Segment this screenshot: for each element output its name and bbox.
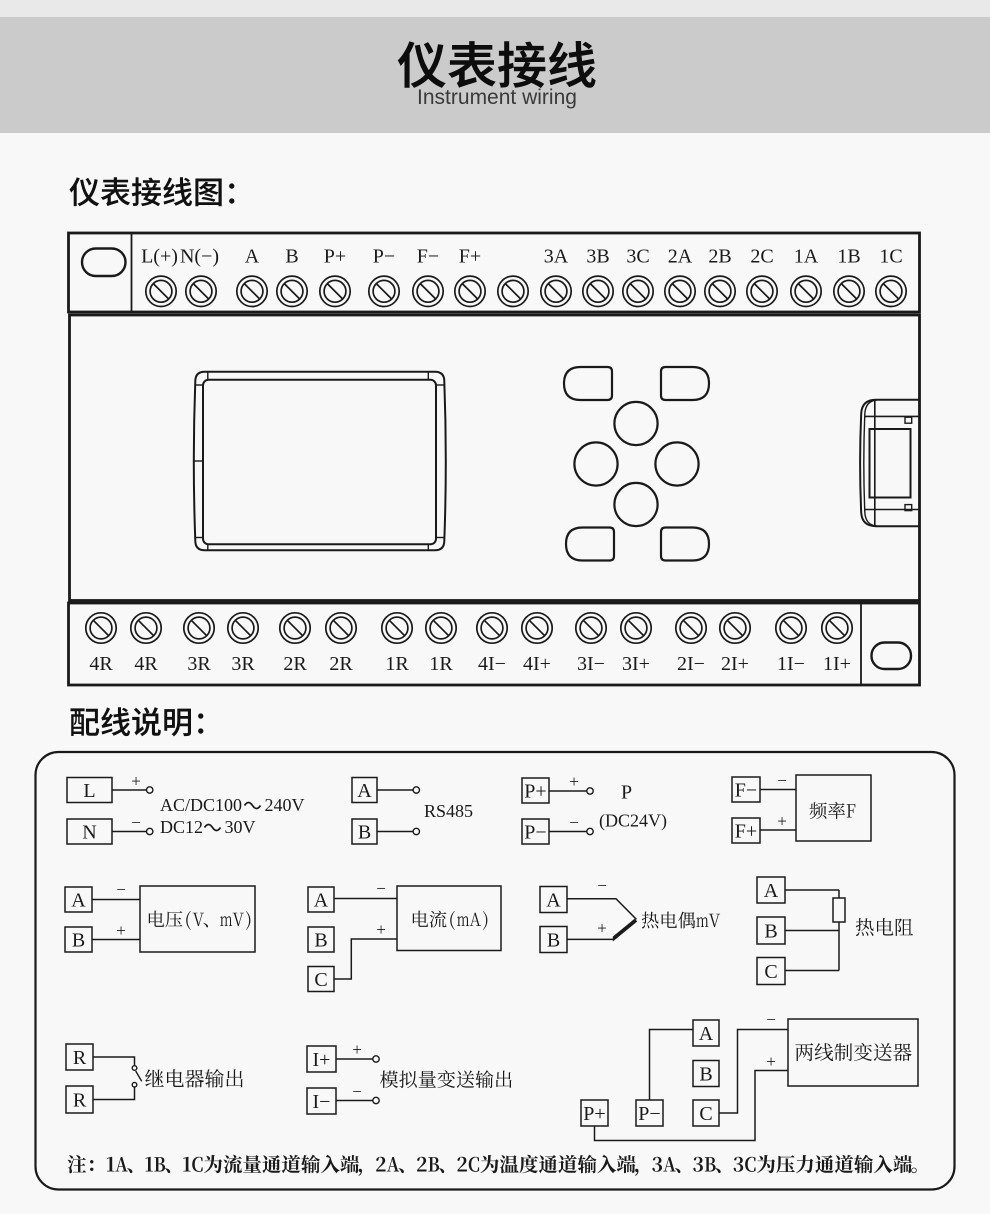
svg-text:R: R bbox=[73, 1089, 87, 1111]
svg-text:I+: I+ bbox=[313, 1049, 331, 1071]
svg-text:3I−: 3I− bbox=[577, 653, 605, 675]
svg-text:+: + bbox=[766, 1052, 776, 1071]
svg-text:3I+: 3I+ bbox=[622, 653, 650, 675]
svg-text:4R: 4R bbox=[89, 653, 113, 675]
svg-text:R: R bbox=[73, 1047, 87, 1069]
svg-text:B: B bbox=[547, 929, 560, 951]
svg-text:B: B bbox=[285, 246, 298, 268]
svg-text:P+: P+ bbox=[524, 780, 546, 802]
svg-text:−: − bbox=[766, 1010, 776, 1029]
svg-text:−: − bbox=[777, 771, 787, 790]
svg-text:A: A bbox=[546, 889, 561, 911]
svg-text:C: C bbox=[764, 961, 777, 983]
svg-text:2I+: 2I+ bbox=[721, 653, 749, 675]
svg-text:A: A bbox=[764, 880, 779, 902]
svg-text:−: − bbox=[116, 880, 126, 899]
svg-text:2R: 2R bbox=[329, 653, 353, 675]
svg-text:C: C bbox=[699, 1103, 712, 1125]
svg-text:F−: F− bbox=[417, 246, 439, 268]
svg-text:3R: 3R bbox=[231, 653, 255, 675]
svg-text:L(+): L(+) bbox=[141, 246, 178, 268]
svg-text:1I+: 1I+ bbox=[823, 653, 851, 675]
svg-text:P−: P− bbox=[373, 246, 395, 268]
svg-text:AC/DC100: AC/DC100 bbox=[160, 795, 242, 815]
svg-text:(DC24V): (DC24V) bbox=[599, 811, 667, 832]
svg-text:+: + bbox=[569, 772, 579, 791]
svg-text:2C: 2C bbox=[750, 246, 773, 268]
svg-text:1R: 1R bbox=[429, 653, 453, 675]
svg-text:P+: P+ bbox=[324, 246, 346, 268]
svg-text:1I−: 1I− bbox=[777, 653, 805, 675]
svg-text:L: L bbox=[83, 780, 95, 802]
svg-text:B: B bbox=[314, 929, 327, 951]
svg-text:−: − bbox=[597, 876, 607, 895]
svg-text:30V: 30V bbox=[225, 817, 256, 837]
svg-text:P+: P+ bbox=[583, 1103, 605, 1125]
svg-text:RS485: RS485 bbox=[424, 801, 473, 821]
svg-text:B: B bbox=[358, 821, 371, 843]
svg-text:1C: 1C bbox=[879, 246, 902, 268]
svg-text:2B: 2B bbox=[708, 246, 731, 268]
svg-text:3R: 3R bbox=[187, 653, 211, 675]
svg-text:+: + bbox=[597, 919, 607, 938]
svg-text:B: B bbox=[72, 929, 85, 951]
svg-text:F+: F+ bbox=[735, 820, 757, 842]
svg-text:3A: 3A bbox=[544, 246, 569, 268]
svg-text:+: + bbox=[116, 921, 126, 940]
svg-text:A: A bbox=[245, 246, 260, 268]
svg-text:−: − bbox=[569, 813, 579, 832]
svg-text:4I+: 4I+ bbox=[523, 653, 551, 675]
svg-text:A: A bbox=[357, 780, 372, 802]
svg-text:F−: F− bbox=[735, 779, 757, 801]
svg-text:P−: P− bbox=[638, 1103, 660, 1125]
svg-text:Instrument wiring: Instrument wiring bbox=[417, 86, 577, 109]
svg-text:+: + bbox=[352, 1040, 362, 1059]
svg-text:3B: 3B bbox=[586, 246, 609, 268]
svg-text:+: + bbox=[777, 812, 787, 831]
svg-text:−: − bbox=[131, 813, 141, 832]
svg-text:+: + bbox=[131, 772, 141, 791]
svg-text:3C: 3C bbox=[626, 246, 649, 268]
svg-text:A: A bbox=[314, 889, 329, 911]
svg-text:1R: 1R bbox=[385, 653, 409, 675]
svg-text:A: A bbox=[71, 889, 86, 911]
svg-text:+: + bbox=[376, 920, 386, 939]
svg-text:1A: 1A bbox=[794, 246, 819, 268]
svg-text:N: N bbox=[82, 821, 96, 843]
svg-text:P−: P− bbox=[524, 821, 546, 843]
svg-text:4R: 4R bbox=[134, 653, 158, 675]
svg-text:2I−: 2I− bbox=[677, 653, 705, 675]
svg-text:B: B bbox=[699, 1063, 712, 1085]
svg-text:C: C bbox=[314, 969, 327, 991]
svg-text:A: A bbox=[699, 1023, 714, 1045]
svg-text:2A: 2A bbox=[668, 246, 693, 268]
svg-text:1B: 1B bbox=[837, 246, 860, 268]
svg-text:240V: 240V bbox=[265, 795, 305, 815]
svg-text:F+: F+ bbox=[459, 246, 481, 268]
svg-text:P: P bbox=[621, 782, 632, 804]
svg-text:N(−): N(−) bbox=[180, 246, 219, 268]
svg-text:B: B bbox=[764, 920, 777, 942]
svg-text:I−: I− bbox=[313, 1091, 331, 1113]
svg-text:−: − bbox=[376, 879, 386, 898]
svg-text:2R: 2R bbox=[283, 653, 307, 675]
svg-text:−: − bbox=[352, 1082, 362, 1101]
svg-text:4I−: 4I− bbox=[478, 653, 506, 675]
svg-text:DC12: DC12 bbox=[160, 817, 203, 837]
